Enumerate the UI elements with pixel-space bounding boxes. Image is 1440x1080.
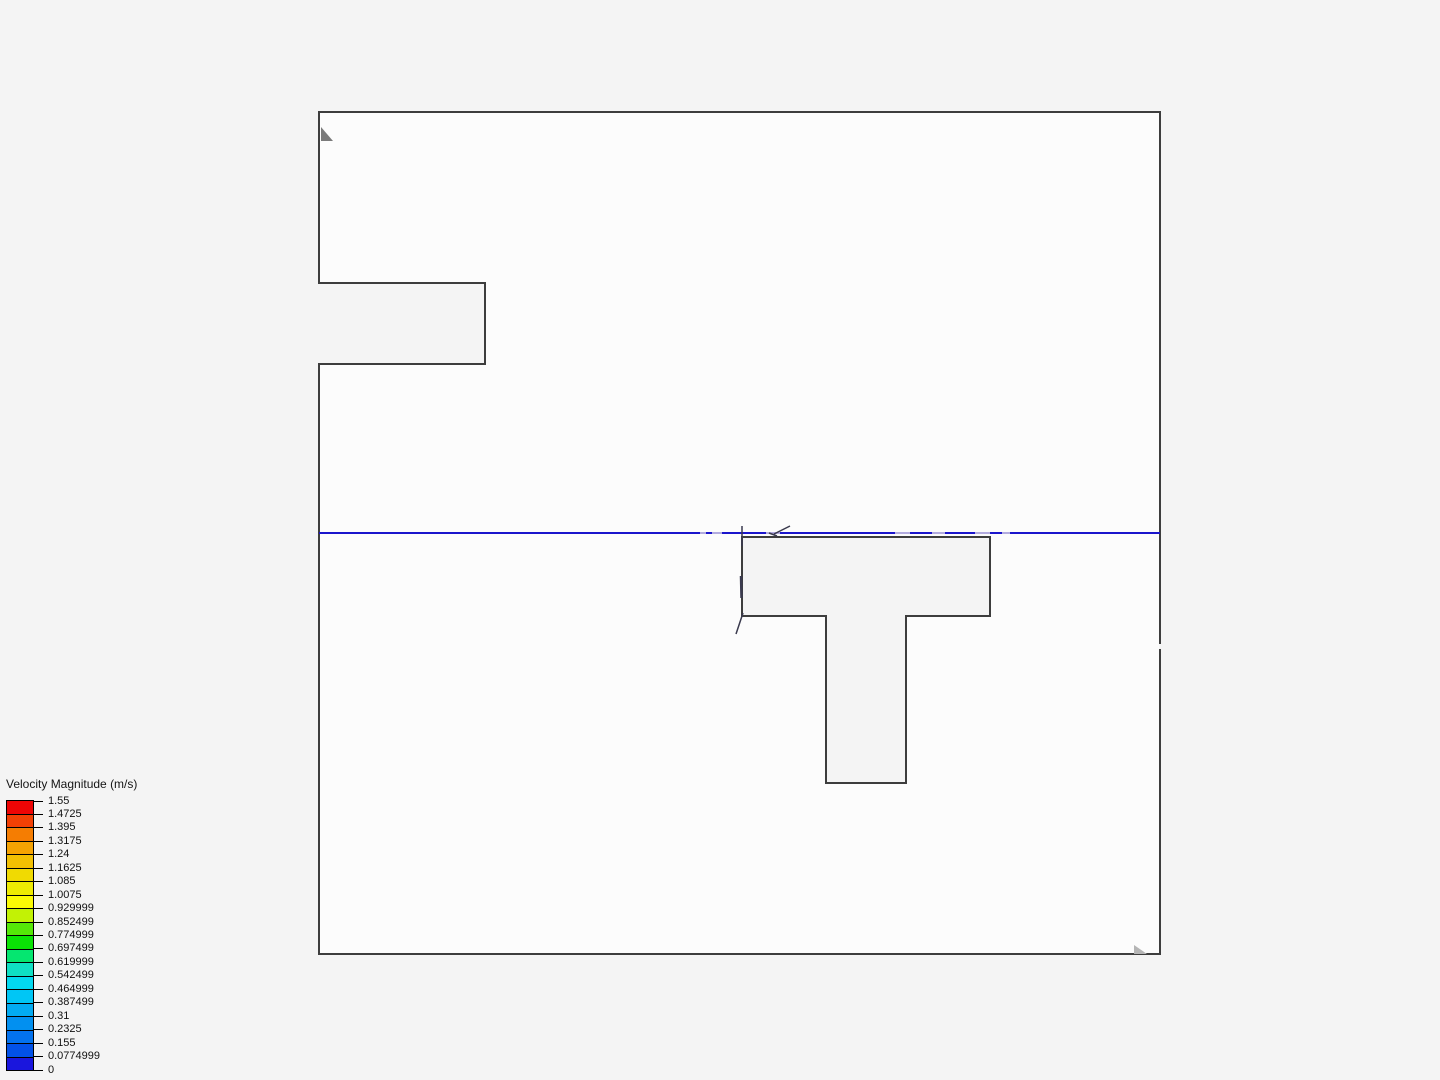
legend-tick-label: 0.619999 xyxy=(48,957,94,968)
legend-tick-label: 1.24 xyxy=(48,849,69,860)
legend-tick-label: 1.085 xyxy=(48,876,76,887)
legend-color-segment xyxy=(7,1030,33,1044)
legend-color-segment xyxy=(7,827,33,841)
legend-tick-label: 0.929999 xyxy=(48,903,94,914)
legend-tick-mark xyxy=(34,1056,43,1057)
legend-tick-mark xyxy=(34,922,43,923)
legend-tick-mark xyxy=(34,975,43,976)
legend-color-segment xyxy=(7,881,33,895)
legend-color-segment xyxy=(7,908,33,922)
legend-tick-label: 1.395 xyxy=(48,822,76,833)
legend-tick-label: 1.3175 xyxy=(48,836,82,847)
legend-tick-label: 0.2325 xyxy=(48,1024,82,1035)
legend-tick-mark xyxy=(34,868,43,869)
legend-tick-mark xyxy=(34,881,43,882)
legend-tick-label: 0.464999 xyxy=(48,984,94,995)
legend-color-segment xyxy=(7,841,33,855)
legend-scale: 1.551.47251.3951.31751.241.16251.0851.00… xyxy=(6,800,166,1071)
legend-color-segment xyxy=(7,1016,33,1030)
legend-color-segment xyxy=(7,976,33,990)
legend-color-segment xyxy=(7,868,33,882)
legend-color-segment xyxy=(7,801,33,814)
legend-tick-label: 0.387499 xyxy=(48,997,94,1008)
legend-tick-mark xyxy=(34,1002,43,1003)
right-wall-gap-inner xyxy=(1157,644,1160,649)
legend-color-segment xyxy=(7,854,33,868)
legend-tick-mark xyxy=(34,948,43,949)
legend-tick-mark xyxy=(34,814,43,815)
legend-tick-mark xyxy=(34,801,43,802)
legend-tick-label: 0.774999 xyxy=(48,930,94,941)
legend-tick-mark xyxy=(34,908,43,909)
legend-tick-mark xyxy=(34,827,43,828)
legend-tick-label: 0.852499 xyxy=(48,917,94,928)
legend-color-segment xyxy=(7,1003,33,1017)
cfd-scene xyxy=(0,0,1440,1080)
legend-bar xyxy=(6,800,34,1071)
legend-color-segment xyxy=(7,814,33,828)
legend-title: Velocity Magnitude (m/s) xyxy=(6,777,166,792)
legend-tick-mark xyxy=(34,1029,43,1030)
legend-tick-mark xyxy=(34,989,43,990)
legend-tick-label: 1.4725 xyxy=(48,809,82,820)
legend-color-segment xyxy=(7,1057,33,1071)
legend-tick-label: 0.0774999 xyxy=(48,1051,100,1062)
legend-tick-label: 0 xyxy=(48,1065,54,1076)
legend-color-segment xyxy=(7,922,33,936)
legend-tick-label: 1.1625 xyxy=(48,863,82,874)
legend-tick-mark xyxy=(34,841,43,842)
legend-tick-label: 0.31 xyxy=(48,1011,69,1022)
legend-color-segment xyxy=(7,949,33,963)
color-legend[interactable]: Velocity Magnitude (m/s) 1.551.47251.395… xyxy=(6,777,166,1071)
legend-color-segment xyxy=(7,935,33,949)
legend-tick-label: 1.55 xyxy=(48,796,69,807)
legend-color-segment xyxy=(7,1043,33,1057)
legend-tick-mark xyxy=(34,1043,43,1044)
legend-tick-mark xyxy=(34,895,43,896)
legend-tick-label: 1.0075 xyxy=(48,890,82,901)
legend-tick-mark xyxy=(34,1016,43,1017)
legend-tick-label: 0.155 xyxy=(48,1038,76,1049)
legend-tick-mark xyxy=(34,935,43,936)
render-viewport[interactable] xyxy=(0,0,1440,1080)
legend-tick-label: 0.542499 xyxy=(48,970,94,981)
legend-tick-mark xyxy=(34,1070,43,1071)
legend-color-segment xyxy=(7,895,33,909)
legend-tick-label: 0.697499 xyxy=(48,943,94,954)
right-wall-gap-outer xyxy=(1160,644,1164,649)
legend-color-segment xyxy=(7,989,33,1003)
legend-ticks: 1.551.47251.3951.31751.241.16251.0851.00… xyxy=(34,801,154,1070)
legend-tick-mark xyxy=(34,962,43,963)
legend-color-segment xyxy=(7,962,33,976)
legend-tick-mark xyxy=(34,854,43,855)
